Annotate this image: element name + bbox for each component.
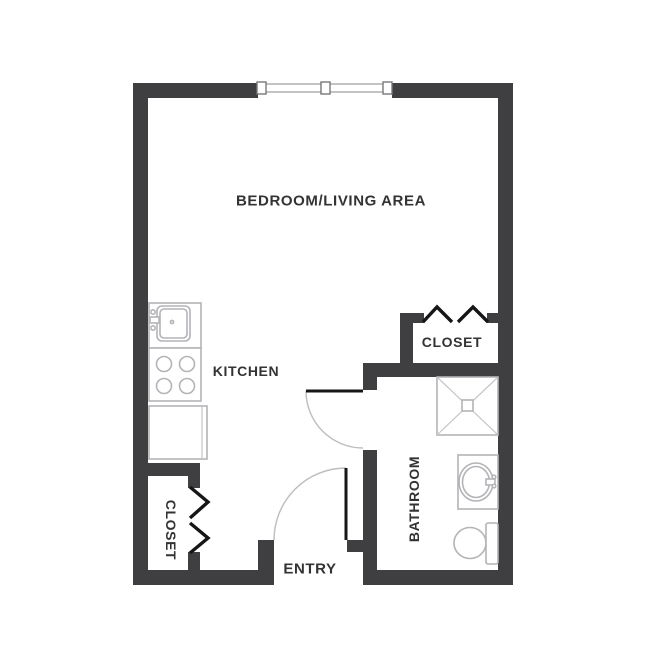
window-mullion [321, 82, 330, 94]
burner [180, 379, 195, 394]
floor-plan-drawing [0, 0, 650, 650]
sink-knob [151, 326, 155, 330]
wall-bottom-right [363, 570, 513, 585]
burner [157, 379, 172, 394]
bifold-panel [458, 307, 488, 322]
wall-bathroom-top [363, 363, 513, 377]
label-closet-right: CLOSET [422, 334, 482, 350]
label-bathroom: BATHROOM [406, 456, 422, 542]
sink-knob [151, 310, 155, 314]
wall-closet-right-top-b [487, 313, 513, 323]
window-mullion [257, 82, 266, 94]
counter-body [149, 406, 207, 459]
bathroom-door-jamb [363, 377, 377, 390]
closet-left-stub-bottom [188, 552, 200, 572]
sink-drain [170, 320, 173, 323]
vanity-knob [492, 475, 496, 479]
burner [157, 357, 172, 372]
burner [180, 357, 195, 372]
bifold-panel [190, 523, 208, 553]
label-entry: ENTRY [283, 561, 336, 578]
vanity-sink [458, 455, 498, 509]
wall-right [498, 83, 513, 585]
floor-plan: BEDROOM/LIVING AREA KITCHEN CLOSET BATHR… [0, 0, 650, 650]
wall-bathroom-left [363, 450, 377, 585]
bathroom-door [306, 391, 363, 448]
label-closet-left: CLOSET [163, 500, 179, 560]
shower-drain [462, 400, 473, 411]
vanity-knob [492, 484, 496, 488]
label-kitchen: KITCHEN [213, 363, 279, 379]
bifold-panel [190, 487, 208, 518]
stove-body [149, 348, 201, 401]
bifold-doors-closet-left [190, 487, 208, 553]
sink-faucet [150, 317, 159, 323]
stove [149, 348, 201, 401]
kitchen-counter [149, 406, 207, 459]
kitchen-sink [149, 303, 201, 348]
wall-closet-right-side [400, 313, 413, 368]
wall-top-left [133, 83, 258, 98]
bifold-panel [423, 307, 452, 322]
entry-left-jamb [258, 540, 274, 585]
entry-door-arc [274, 468, 346, 540]
bifold-doors-closet-right [423, 307, 488, 322]
window-mullion [383, 82, 392, 94]
wall-left [133, 83, 148, 585]
toilet [454, 523, 498, 564]
toilet-tank [486, 523, 498, 564]
window [257, 82, 392, 94]
toilet-bowl [454, 528, 486, 559]
closet-left-stub-top [188, 463, 200, 488]
window-pane [328, 84, 386, 92]
wall-bottom-left [133, 570, 258, 585]
entry-door [274, 468, 346, 540]
wall-top-right [392, 83, 513, 98]
entry-right-jamb [347, 540, 364, 552]
shower [437, 377, 498, 435]
bathroom-door-arc [306, 391, 363, 448]
label-bedroom-living-area: BEDROOM/LIVING AREA [236, 193, 426, 210]
window-pane [264, 84, 324, 92]
